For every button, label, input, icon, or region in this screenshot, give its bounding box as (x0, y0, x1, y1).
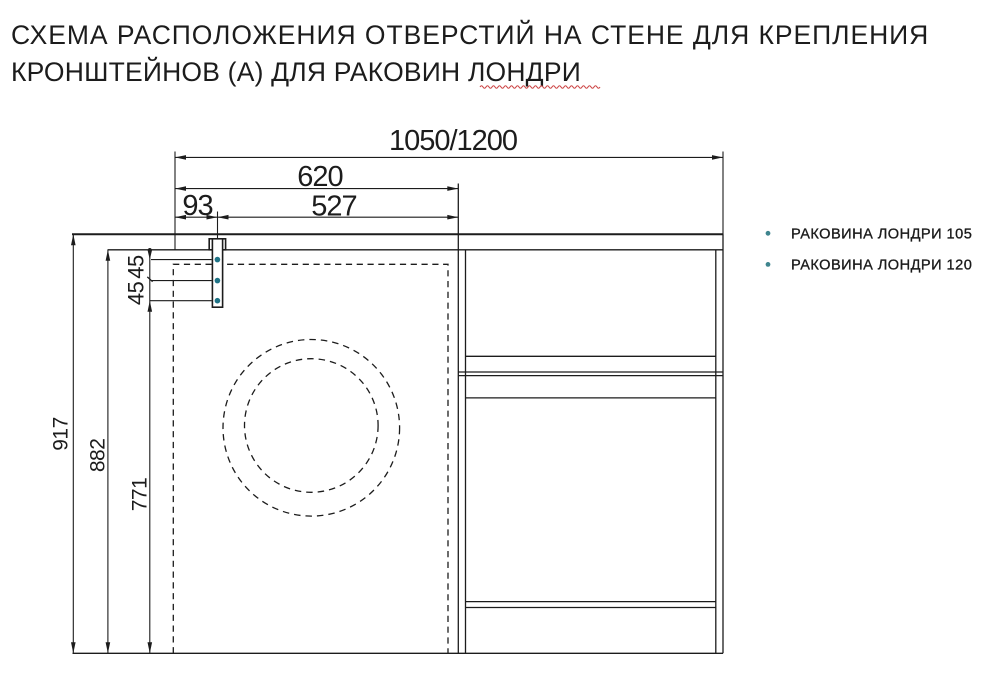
svg-text:93: 93 (182, 190, 212, 222)
svg-text:527: 527 (311, 191, 356, 223)
svg-text:СХЕМА РАСПОЛОЖЕНИЯ ОТВЕРСТИЙ Н: СХЕМА РАСПОЛОЖЕНИЯ ОТВЕРСТИЙ НА СТЕНЕ ДЛ… (11, 20, 929, 50)
svg-text:882: 882 (87, 439, 110, 473)
svg-text:771: 771 (128, 478, 151, 512)
svg-text:917: 917 (50, 417, 73, 451)
svg-text:45: 45 (123, 281, 148, 305)
svg-text:1050/1200: 1050/1200 (389, 125, 517, 157)
svg-text:РАКОВИНА ЛОНДРИ 105: РАКОВИНА ЛОНДРИ 105 (791, 227, 972, 243)
svg-text:РАКОВИНА ЛОНДРИ 120: РАКОВИНА ЛОНДРИ 120 (791, 258, 972, 274)
svg-text:45: 45 (123, 255, 148, 279)
svg-text:КРОНШТЕЙНОВ (А) ДЛЯ РАКОВИН ЛО: КРОНШТЕЙНОВ (А) ДЛЯ РАКОВИН ЛОНДРИ (11, 57, 581, 87)
svg-text:620: 620 (297, 161, 342, 193)
